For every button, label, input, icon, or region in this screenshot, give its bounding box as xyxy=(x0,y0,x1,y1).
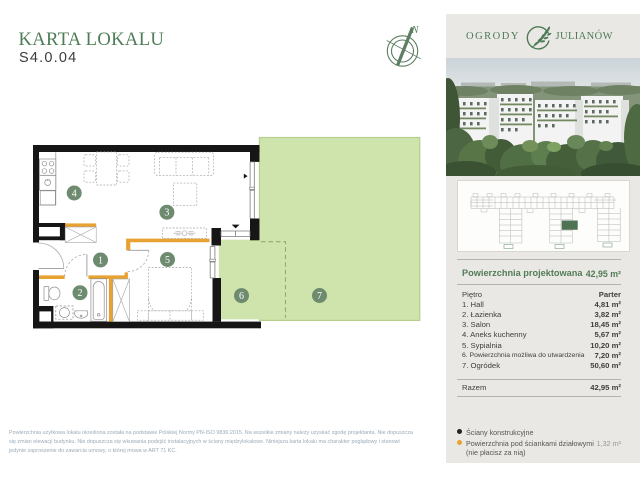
svg-text:5: 5 xyxy=(165,255,170,266)
svg-text:4: 4 xyxy=(72,188,77,199)
svg-text:N: N xyxy=(411,25,420,36)
svg-text:7: 7 xyxy=(317,291,322,302)
svg-text:3: 3 xyxy=(164,208,169,219)
svg-text:1: 1 xyxy=(98,255,103,266)
svg-text:6: 6 xyxy=(239,291,244,302)
svg-text:2: 2 xyxy=(78,288,83,299)
